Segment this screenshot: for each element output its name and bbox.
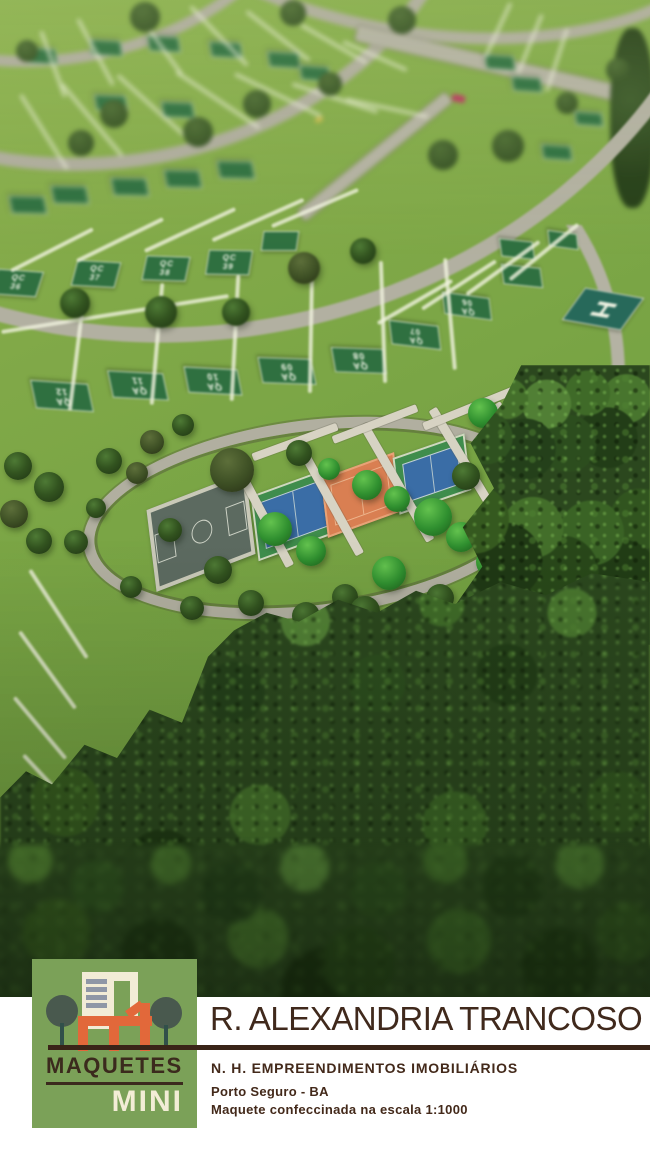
model-photo: QA 12 QA 11 QA 10 QA 09 QA 08 QA 07 QA 0… [0,0,650,997]
building-window [86,995,107,1000]
tree [296,536,326,566]
logo-tree-trunk [60,1023,64,1045]
logo-maquetes-text: MAQUETES [46,1053,183,1085]
tree [210,448,254,492]
tree [286,440,312,466]
tree [452,462,480,490]
location-text: Porto Seguro - BA [211,1084,329,1099]
project-title: R. ALEXANDRIA TRANCOSO [210,1000,650,1038]
tree [384,486,410,512]
tree [86,498,106,518]
tree [258,512,292,546]
tree [4,452,32,480]
building-window [86,1003,107,1008]
scale-note: Maquete confeccinada na escala 1:1000 [211,1102,468,1117]
tree [120,576,142,598]
tree [140,430,164,454]
tree [204,556,232,584]
flyer: QA 12 QA 11 QA 10 QA 09 QA 08 QA 07 QA 0… [0,0,650,1156]
tree [180,596,204,620]
tree [238,590,264,616]
building-window [86,979,107,984]
tree [126,462,148,484]
tree [64,530,88,554]
court-key [225,500,247,536]
divider-rule [48,1045,650,1050]
tree [34,472,64,502]
tree [372,556,406,590]
company-name: N. H. EMPREENDIMENTOS IMOBILIÁRIOS [211,1060,518,1076]
court-center-circle [190,516,213,546]
tree [0,500,28,528]
tree [172,414,194,436]
logo-tree-trunk [164,1025,168,1047]
tree [352,470,382,500]
tree [158,518,182,542]
tree [96,448,122,474]
tree [318,458,340,480]
maquetes-mini-logo: MAQUETES MINI [32,959,197,1128]
logo-mini-text: MINI [112,1085,183,1119]
building-window [86,987,107,992]
tree [26,528,52,554]
